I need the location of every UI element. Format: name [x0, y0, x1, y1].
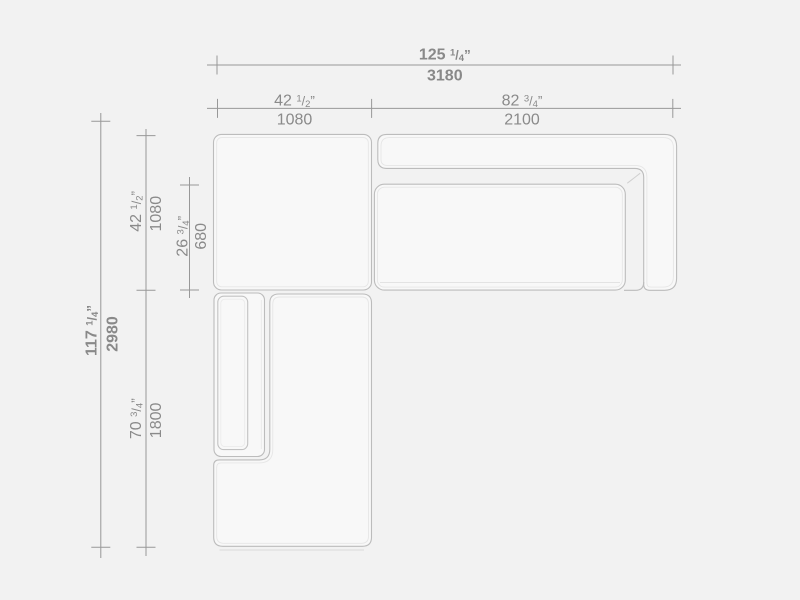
- svg-text:2100: 2100: [504, 112, 540, 129]
- svg-text:117 1/4”: 117 1/4”: [84, 305, 101, 356]
- svg-text:3180: 3180: [427, 68, 463, 85]
- svg-text:1080: 1080: [148, 196, 165, 232]
- svg-text:2980: 2980: [105, 316, 122, 352]
- svg-text:1800: 1800: [148, 403, 165, 439]
- svg-text:680: 680: [193, 223, 210, 250]
- svg-text:1080: 1080: [277, 112, 313, 129]
